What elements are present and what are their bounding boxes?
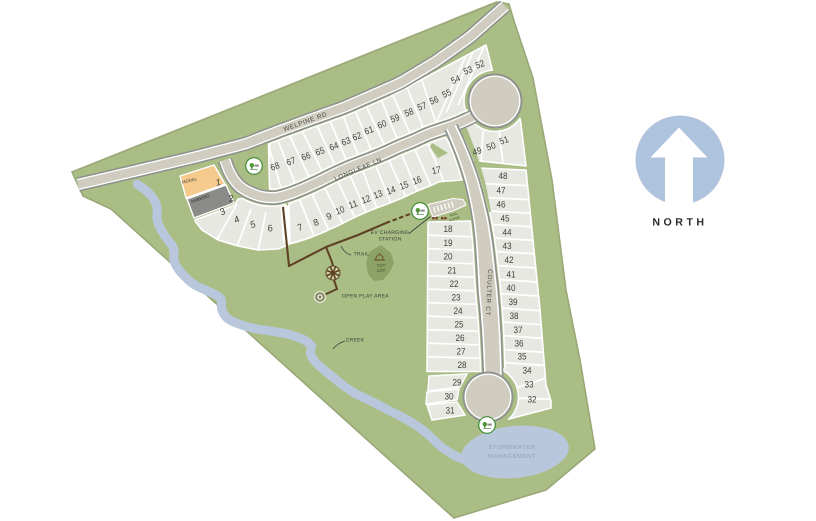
svg-text:33: 33 — [524, 379, 533, 389]
svg-text:23: 23 — [451, 292, 460, 302]
svg-text:20: 20 — [443, 251, 452, 261]
svg-text:27: 27 — [456, 346, 465, 356]
svg-text:48: 48 — [498, 171, 507, 181]
svg-text:18: 18 — [443, 224, 452, 234]
svg-text:OPEN PLAY AREA: OPEN PLAY AREA — [342, 294, 389, 300]
svg-text:43: 43 — [502, 241, 511, 251]
svg-text:35: 35 — [517, 351, 526, 361]
svg-text:39: 39 — [508, 297, 517, 307]
svg-text:41: 41 — [506, 269, 515, 279]
svg-text:LOT: LOT — [377, 268, 386, 273]
svg-text:MANAGEMENT: MANAGEMENT — [488, 453, 536, 460]
svg-text:31: 31 — [445, 405, 454, 415]
svg-text:CREEK: CREEK — [346, 338, 365, 344]
svg-text:22: 22 — [449, 279, 458, 289]
svg-text:46: 46 — [496, 199, 505, 209]
svg-text:26: 26 — [455, 333, 464, 343]
svg-text:29: 29 — [452, 377, 461, 387]
svg-text:19: 19 — [443, 238, 452, 248]
svg-text:TRAIL: TRAIL — [354, 252, 370, 258]
svg-text:36: 36 — [514, 338, 523, 348]
svg-text:38: 38 — [509, 311, 518, 321]
svg-text:NORTH: NORTH — [652, 217, 707, 229]
svg-text:34: 34 — [522, 365, 531, 375]
svg-text:47: 47 — [496, 185, 505, 195]
svg-text:42: 42 — [504, 255, 513, 265]
svg-text:45: 45 — [500, 213, 509, 223]
svg-text:37: 37 — [513, 325, 522, 335]
svg-text:21: 21 — [447, 265, 456, 275]
svg-text:32: 32 — [527, 394, 536, 404]
svg-text:STATION: STATION — [378, 237, 401, 243]
svg-text:24: 24 — [453, 306, 462, 316]
svg-text:44: 44 — [502, 227, 511, 237]
svg-text:30: 30 — [444, 391, 453, 401]
svg-text:STORMWATER: STORMWATER — [488, 444, 536, 451]
svg-text:28: 28 — [457, 360, 466, 370]
svg-text:EV CHARGING: EV CHARGING — [371, 230, 409, 236]
svg-text:25: 25 — [454, 319, 463, 329]
svg-text:40: 40 — [506, 283, 515, 293]
